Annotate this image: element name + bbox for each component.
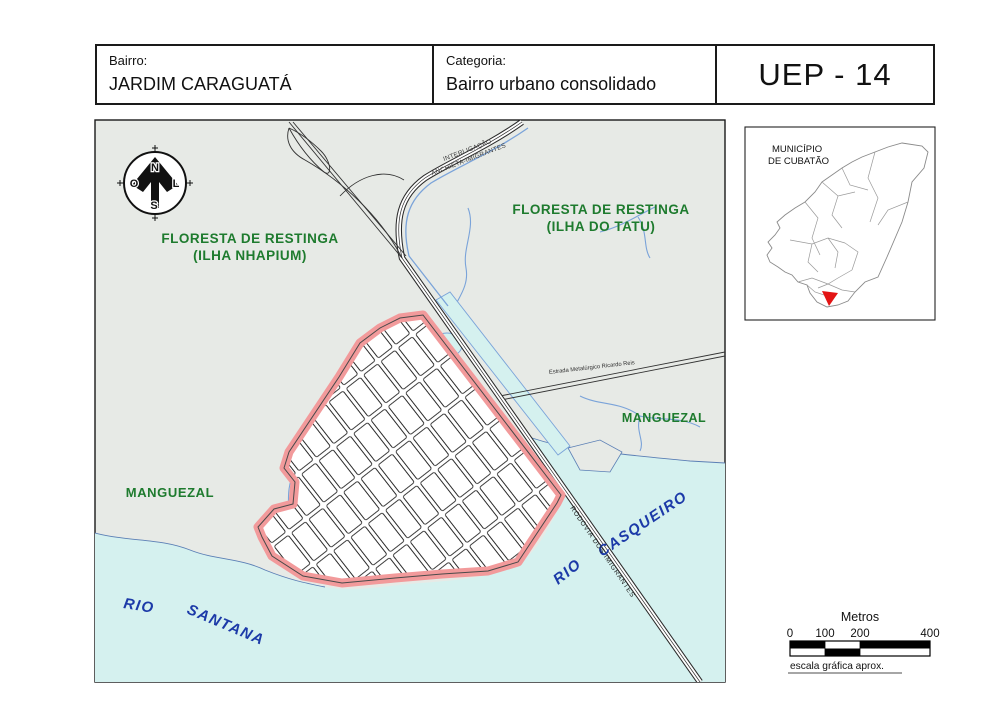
scale-bar-segments	[790, 641, 930, 656]
compass-o: O	[130, 178, 139, 190]
scale-tick-0: 0	[787, 628, 793, 640]
floresta-nhapium-label: FLORESTA DE RESTINGA	[161, 231, 338, 246]
scale-tick-100: 100	[815, 628, 834, 640]
map-sheet: Bairro: JARDIM CARAGUATÁ Categoria: Bair…	[0, 0, 1000, 707]
manguezal-left-label: MANGUEZAL	[126, 485, 214, 500]
inset-map: MUNICÍPIO DE CUBATÃO	[745, 127, 935, 320]
scale-title: Metros	[841, 610, 879, 624]
scale-caption: escala gráfica aprox.	[790, 661, 884, 672]
inset-title-2: DE CUBATÃO	[768, 156, 829, 167]
scale-tick-200: 200	[850, 628, 869, 640]
scale-tick-400: 400	[920, 628, 939, 640]
inset-title-1: MUNICÍPIO	[772, 144, 822, 155]
floresta-nhapium-label2: (ILHA NHAPIUM)	[193, 248, 307, 263]
manguezal-right-label: MANGUEZAL	[622, 411, 706, 425]
scale-bar: Metros 0 100 200 400 escala gráfica apro…	[787, 610, 940, 673]
map-canvas: Estrada Metalúrgico Ricardo Reis	[0, 0, 1000, 707]
floresta-tatu-label2: (ILHA DO TATU)	[547, 219, 656, 234]
compass-n: N	[151, 162, 159, 174]
compass-s: S	[150, 200, 157, 212]
compass-l: L	[173, 178, 180, 190]
floresta-tatu-label: FLORESTA DE RESTINGA	[512, 202, 689, 217]
